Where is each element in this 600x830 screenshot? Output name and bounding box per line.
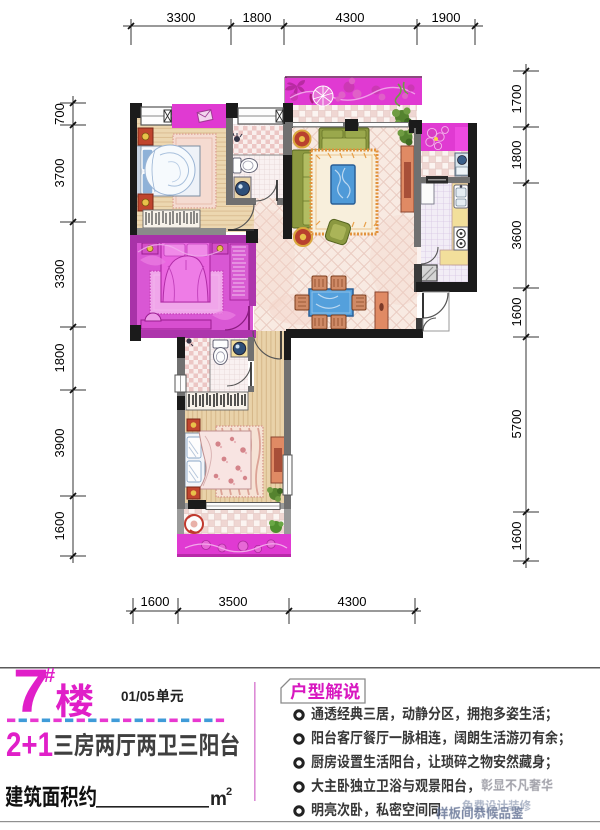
svg-text:5700: 5700: [509, 410, 524, 439]
svg-text:1700: 1700: [509, 85, 524, 114]
svg-text:2+1: 2+1: [6, 726, 53, 764]
svg-text:3600: 3600: [509, 221, 524, 250]
svg-text:3300: 3300: [167, 10, 196, 25]
svg-text:1600: 1600: [509, 298, 524, 327]
svg-text:4300: 4300: [338, 594, 367, 609]
svg-text:4300: 4300: [336, 10, 365, 25]
svg-text:2: 2: [226, 786, 232, 798]
svg-text:3300: 3300: [52, 260, 67, 289]
svg-text:1800: 1800: [509, 141, 524, 170]
svg-text:1600: 1600: [509, 522, 524, 551]
svg-text:#: #: [44, 665, 55, 687]
svg-text:1600: 1600: [141, 594, 170, 609]
svg-text:3900: 3900: [52, 429, 67, 458]
svg-text:01/05: 01/05: [121, 689, 155, 704]
svg-text:1800: 1800: [52, 344, 67, 373]
svg-text:3500: 3500: [219, 594, 248, 609]
svg-text:700: 700: [52, 103, 67, 125]
svg-text:m: m: [210, 789, 227, 810]
svg-text:1800: 1800: [243, 10, 272, 25]
svg-text:3700: 3700: [52, 159, 67, 188]
svg-text:1600: 1600: [52, 512, 67, 541]
svg-text:1900: 1900: [432, 10, 461, 25]
